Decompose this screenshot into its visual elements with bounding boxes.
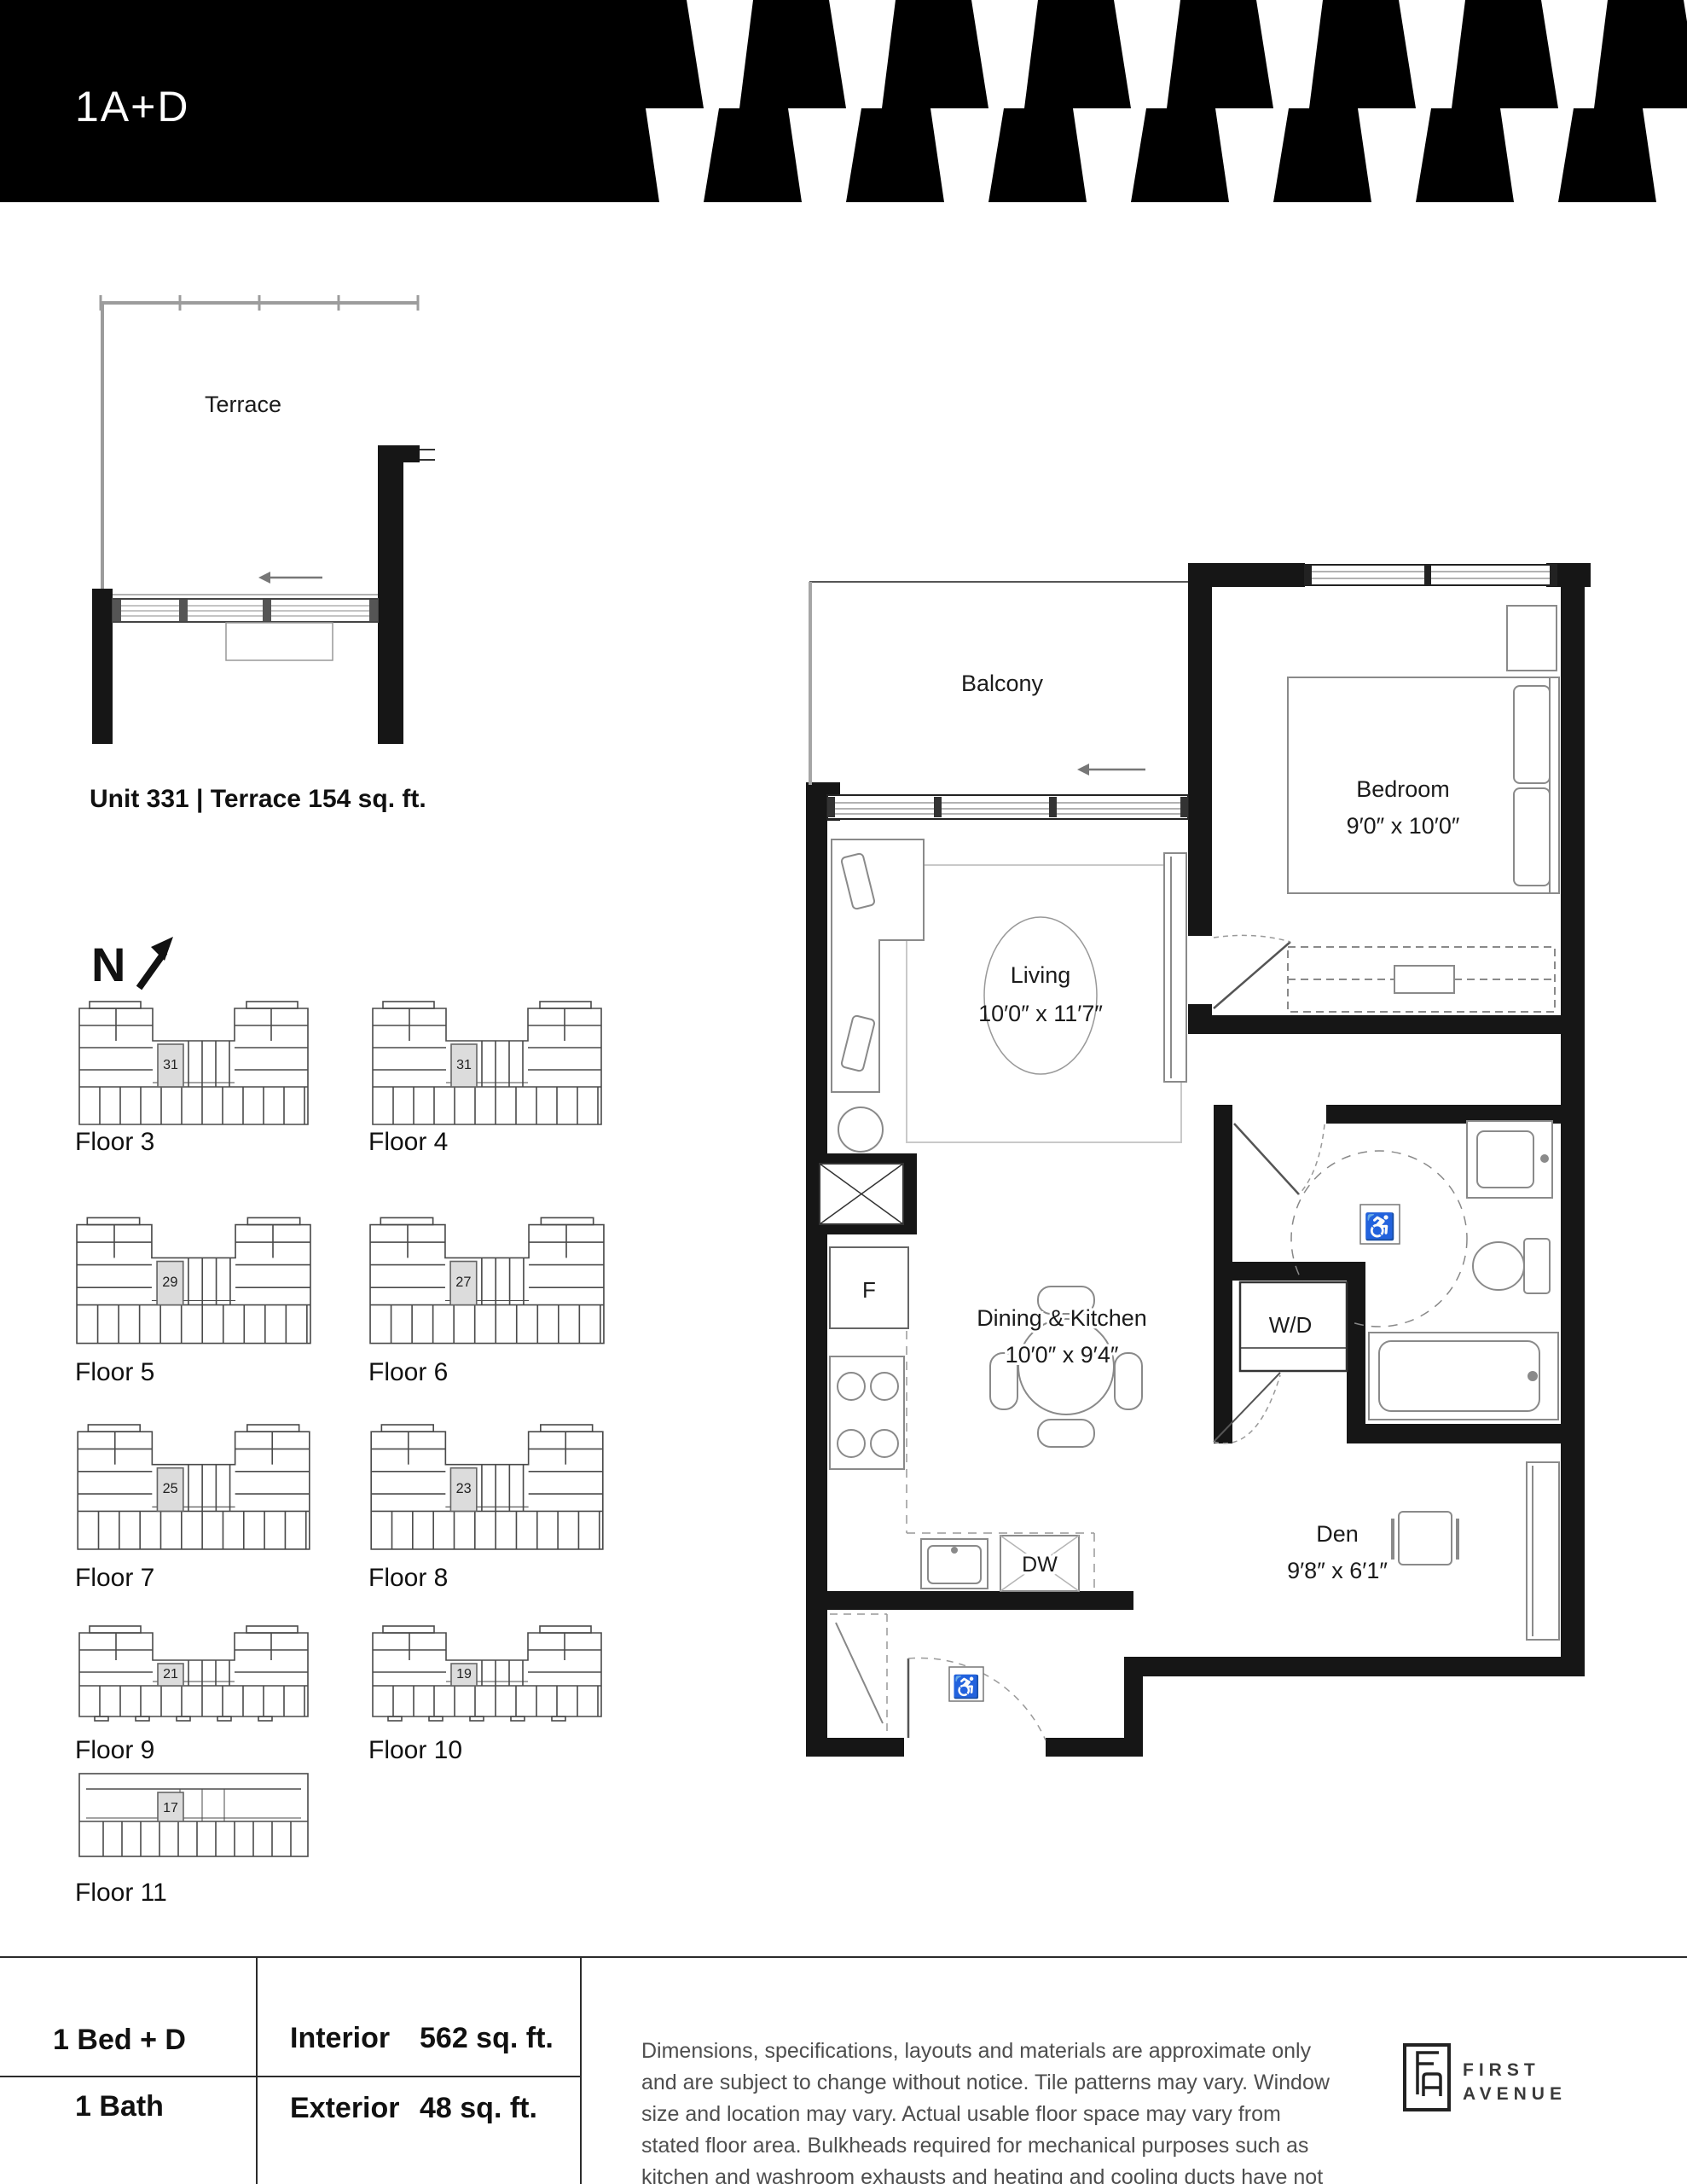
brand-line1: FIRST [1463, 2060, 1540, 2080]
summary-interior-label: Interior [290, 2022, 390, 2055]
terrace-window-right [420, 450, 435, 460]
bedroom-door [1214, 942, 1290, 1008]
washer-dryer-label: W/D [1269, 1312, 1313, 1338]
den-shelf [1527, 1462, 1559, 1640]
terrace-planter [226, 623, 333, 660]
keyplan-floor-10: 19 [368, 1619, 606, 1723]
terrace-door-arrow [258, 572, 322, 584]
svg-text:27: 27 [455, 1275, 471, 1290]
floorplan-sheet: 1A+D Terrace [0, 0, 1687, 2184]
keyplan-floor-5: 29 [75, 1211, 312, 1350]
brand-logo: FIRST AVENUE [1403, 2042, 1625, 2118]
den-dims: 9′8″ x 6′1″ [1287, 1558, 1388, 1583]
summary-exterior-value: 48 sq. ft. [420, 2092, 537, 2125]
table-divider-h [0, 2076, 581, 2077]
summary-bed: 1 Bed + D [0, 2024, 239, 2057]
sink [921, 1539, 988, 1589]
headboard [1550, 677, 1559, 893]
nightstand [1507, 606, 1557, 671]
floor-label-floor-8: Floor 8 [368, 1564, 448, 1593]
stove [830, 1356, 904, 1469]
keyplan-floor-4: 31 [368, 1000, 606, 1126]
bathroom-door [1234, 1124, 1299, 1194]
floor-label-floor-4: Floor 4 [368, 1128, 448, 1157]
terrace-plan: Terrace [51, 171, 435, 768]
terrace-window-band [113, 595, 378, 622]
floor-label-floor-10: Floor 10 [368, 1736, 462, 1765]
floor-label-floor-5: Floor 5 [75, 1358, 154, 1387]
floor-label-floor-6: Floor 6 [368, 1358, 448, 1387]
den-label: Den [1316, 1521, 1359, 1547]
summary-interior-value: 562 sq. ft. [420, 2022, 554, 2055]
dining-label: Dining & Kitchen [977, 1305, 1147, 1331]
north-indicator: N [90, 928, 183, 996]
plan-code: 1A+D [75, 82, 189, 131]
keyplan-floor-3: 31 [75, 1000, 312, 1126]
disclaimer-text: Dimensions, specifications, layouts and … [641, 2036, 1332, 2184]
table-top-rule [0, 1956, 1687, 1958]
balcony-label: Balcony [961, 671, 1044, 696]
terrace-caption: Unit 331 | Terrace 154 sq. ft. [90, 785, 426, 814]
fa-monogram-box [1405, 2045, 1449, 2110]
floor-label-floor-3: Floor 3 [75, 1128, 154, 1157]
terrace-label: Terrace [205, 392, 281, 417]
bedroom-label: Bedroom [1356, 776, 1450, 802]
north-letter: N [91, 938, 125, 991]
toilet-bowl [1473, 1242, 1524, 1290]
bathroom: ♿ W/D [1214, 1121, 1558, 1443]
living-label: Living [1011, 962, 1071, 988]
living-room [832, 839, 1186, 1152]
floor-label-floor-7: Floor 7 [75, 1564, 154, 1593]
keyplan-floor-8: 23 [368, 1423, 606, 1551]
svg-text:31: 31 [163, 1058, 178, 1072]
fa-monogram-icon [1417, 2053, 1441, 2096]
toilet-tank [1524, 1239, 1550, 1293]
svg-text:23: 23 [456, 1481, 472, 1496]
living-dims: 10′0″ x 11′7″ [978, 1001, 1103, 1026]
bedroom-dims: 9′0″ x 10′0″ [1347, 813, 1460, 839]
den-chair [1399, 1512, 1452, 1565]
summary-bath: 1 Bath [0, 2090, 239, 2123]
svg-text:17: 17 [163, 1801, 178, 1815]
entry: ♿ [830, 1614, 1046, 1740]
den [1393, 1462, 1559, 1640]
side-table [838, 1107, 883, 1152]
bedroom [1214, 606, 1559, 1012]
living-label-ellipse [984, 917, 1097, 1074]
fridge-label: F [862, 1277, 876, 1303]
table-divider-v1 [256, 1956, 258, 2184]
keyplan-floor-6: 27 [368, 1211, 606, 1350]
main-floor-plan: Balcony [806, 556, 1591, 1759]
floor-label-floor-9: Floor 9 [75, 1736, 154, 1765]
north-arrow-icon [139, 937, 173, 988]
keyplan-floor-9: 21 [75, 1619, 312, 1723]
dishwasher-label: DW [1022, 1553, 1058, 1577]
accessible-icon: ♿ [1364, 1211, 1395, 1241]
svg-text:29: 29 [162, 1275, 177, 1290]
summary-exterior-label: Exterior [290, 2092, 400, 2125]
floor-label-floor-11: Floor 11 [75, 1879, 167, 1908]
terrace-railing [101, 295, 418, 590]
table-divider-v2 [580, 1956, 582, 2184]
svg-text:21: 21 [163, 1667, 178, 1682]
dishwasher: DW [1000, 1536, 1079, 1591]
balcony: Balcony [809, 582, 1188, 785]
brand-line2: AVENUE [1463, 2084, 1567, 2104]
dining-dims: 10′0″ x 9′4″ [1006, 1342, 1119, 1368]
pillow [1514, 686, 1550, 783]
media-console [1164, 853, 1186, 1082]
keyplan-floor-11: 17 [75, 1770, 312, 1858]
svg-text:31: 31 [456, 1058, 472, 1072]
svg-text:19: 19 [456, 1667, 472, 1682]
entry-accessible-icon: ♿ [953, 1674, 980, 1699]
svg-text:25: 25 [163, 1481, 178, 1496]
keyplan-floor-7: 25 [75, 1423, 312, 1551]
pillow [1514, 788, 1550, 886]
